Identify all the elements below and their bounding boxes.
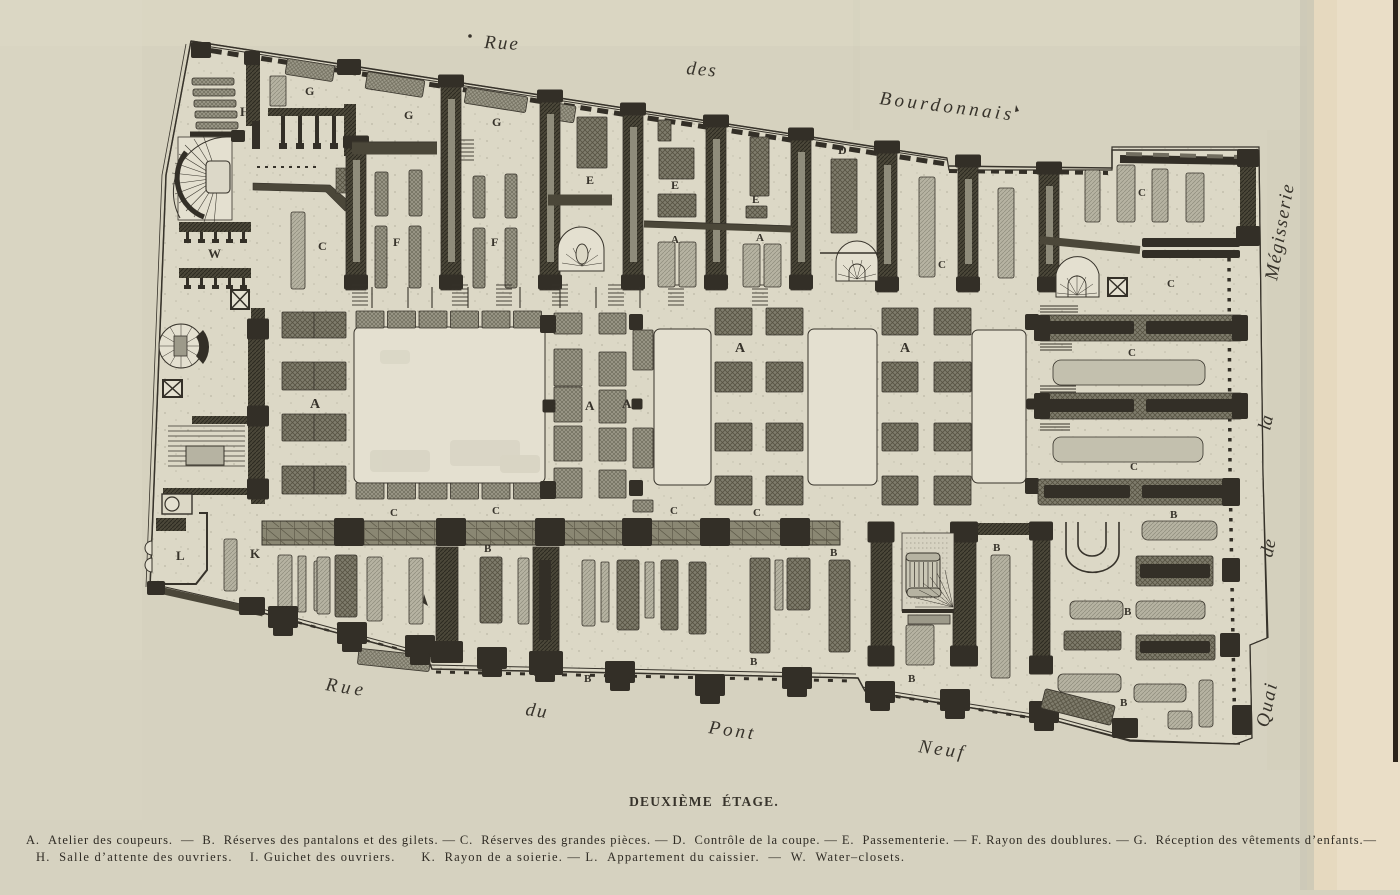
svg-text:C: C: [492, 505, 500, 517]
svg-text:A: A: [756, 232, 764, 244]
svg-text:W: W: [208, 246, 221, 261]
svg-text:C: C: [1130, 461, 1138, 473]
svg-text:A: A: [900, 341, 911, 356]
svg-text:A: A: [310, 397, 321, 412]
svg-text:Rue: Rue: [483, 32, 521, 55]
svg-text:B: B: [1120, 697, 1128, 709]
svg-text:C: C: [390, 507, 398, 519]
svg-text:E: E: [752, 194, 759, 206]
svg-text:F: F: [393, 235, 400, 249]
svg-text:B: B: [908, 673, 916, 685]
svg-text:C: C: [318, 239, 327, 253]
svg-text:A: A: [622, 396, 632, 411]
svg-text:D: D: [838, 143, 847, 157]
svg-text:C: C: [753, 507, 761, 519]
svg-text:E: E: [586, 173, 594, 187]
svg-text:H. Salle d’attente des ouvrie: H. Salle d’attente des ouvriers. I. Guic…: [36, 850, 904, 864]
svg-text:E: E: [671, 178, 679, 192]
svg-text:DEUXIÈME ÉTAGE.: DEUXIÈME ÉTAGE.: [629, 794, 779, 809]
svg-text:B: B: [750, 656, 758, 668]
svg-text:B: B: [1124, 606, 1132, 618]
svg-text:C: C: [1138, 187, 1146, 199]
svg-text:B: B: [830, 547, 838, 559]
svg-text:A: A: [735, 341, 746, 356]
svg-text:G: G: [492, 115, 501, 129]
svg-text:du: du: [524, 699, 550, 723]
svg-text:A: A: [585, 398, 595, 413]
svg-text:C: C: [1128, 347, 1136, 359]
svg-text:K: K: [250, 546, 261, 561]
svg-text:G: G: [404, 108, 413, 122]
svg-text:F: F: [491, 235, 498, 249]
svg-text:G: G: [305, 84, 314, 98]
svg-text:B: B: [584, 673, 592, 685]
svg-text:C: C: [670, 505, 678, 517]
svg-text:C: C: [938, 259, 946, 271]
svg-text:B: B: [993, 542, 1001, 554]
svg-text:B: B: [484, 543, 492, 555]
svg-text:C: C: [1167, 278, 1175, 290]
svg-text:des: des: [686, 58, 719, 82]
svg-text:B: B: [1170, 509, 1178, 521]
svg-text:A. Atelier des coupeurs. —: A. Atelier des coupeurs. — B. Réserves d…: [26, 833, 1377, 847]
svg-text:L: L: [176, 548, 185, 563]
